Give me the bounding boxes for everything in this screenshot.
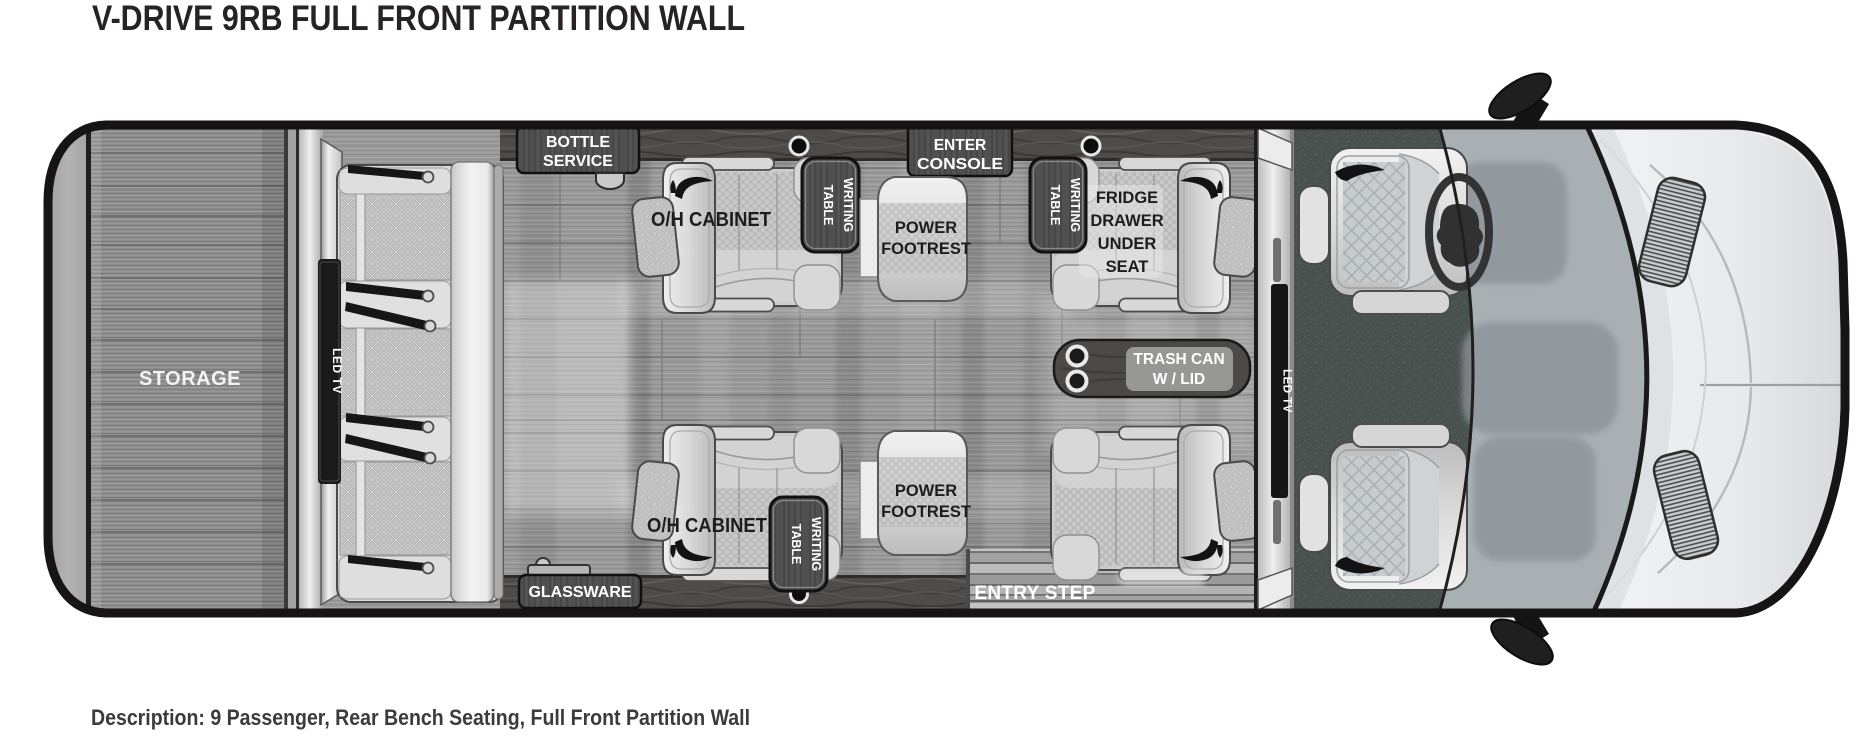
svg-text:GLASSWARE: GLASSWARE (528, 584, 631, 601)
svg-text:TABLE: TABLE (1048, 185, 1062, 226)
svg-text:WRITING: WRITING (809, 517, 823, 571)
svg-text:LED TV: LED TV (330, 348, 344, 394)
svg-text:LED TV: LED TV (1281, 369, 1293, 413)
svg-text:CONSOLE: CONSOLE (917, 156, 1003, 173)
svg-text:FOOTREST: FOOTREST (881, 240, 971, 258)
svg-text:WRITING: WRITING (1068, 178, 1082, 232)
svg-text:Description: 9 Passenger, Rear: Description: 9 Passenger, Rear Bench Sea… (91, 705, 750, 730)
svg-text:STORAGE: STORAGE (139, 368, 241, 390)
svg-text:TABLE: TABLE (789, 524, 803, 565)
svg-text:SERVICE: SERVICE (543, 153, 613, 170)
svg-text:WRITING: WRITING (841, 178, 855, 232)
svg-text:ENTER: ENTER (934, 137, 987, 154)
svg-text:O/H CABINET: O/H CABINET (651, 209, 771, 231)
svg-text:POWER: POWER (895, 482, 957, 500)
svg-text:POWER: POWER (895, 219, 957, 237)
svg-text:DRAWER: DRAWER (1090, 212, 1163, 230)
svg-text:BOTTLE: BOTTLE (546, 134, 610, 151)
svg-text:ENTRY STEP: ENTRY STEP (974, 583, 1095, 604)
svg-text:V-DRIVE 9RB FULL FRONT PARTITI: V-DRIVE 9RB FULL FRONT PARTITION WALL (92, 0, 745, 38)
svg-text:TRASH CAN: TRASH CAN (1133, 351, 1224, 368)
svg-text:TABLE: TABLE (821, 185, 835, 226)
svg-text:UNDER: UNDER (1098, 235, 1157, 253)
svg-text:FRIDGE: FRIDGE (1096, 189, 1158, 207)
svg-text:FOOTREST: FOOTREST (881, 503, 971, 521)
svg-text:W / LID: W / LID (1153, 371, 1206, 388)
svg-text:O/H CABINET: O/H CABINET (647, 515, 767, 537)
svg-text:SEAT: SEAT (1106, 258, 1149, 276)
